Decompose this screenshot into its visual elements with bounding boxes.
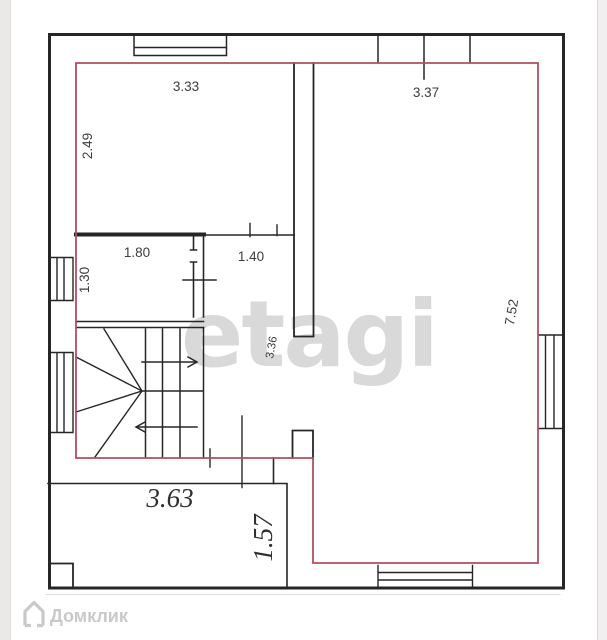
stair-treads	[146, 329, 181, 457]
chimney-box	[293, 431, 314, 459]
dim-room-top-left-height: 2.49	[80, 133, 95, 159]
window-left-upper	[50, 258, 73, 301]
dim-hall-width: 1.40	[238, 249, 264, 264]
dim-room-right-height: 7.52	[502, 298, 521, 326]
window-top-right	[378, 34, 470, 79]
dim-room-bottom-left-height: 1.57	[248, 513, 278, 562]
dim-room-small-width: 1.80	[124, 245, 150, 260]
dim-room-right-width: 3.37	[413, 85, 439, 100]
window-bottom	[378, 566, 473, 588]
dim-room-bottom-left-width: 3.63	[145, 483, 193, 513]
window-top-left	[134, 36, 227, 56]
dim-room-top-left-width: 3.33	[173, 79, 199, 94]
stair-winder-lines	[76, 329, 142, 457]
window-left-lower	[50, 353, 73, 433]
bottom-watermark: Домклик	[25, 603, 129, 627]
window-right	[539, 335, 563, 429]
corner-pillar	[49, 564, 73, 589]
watermark-brand-text: etagi	[181, 281, 437, 388]
floor-plan-page: etagi	[0, 0, 607, 640]
watermark-bottom-text: Домклик	[50, 606, 129, 626]
floor-plan-svg: etagi	[0, 0, 607, 640]
dim-room-small-height: 1.30	[77, 267, 92, 293]
house-icon	[25, 603, 43, 626]
